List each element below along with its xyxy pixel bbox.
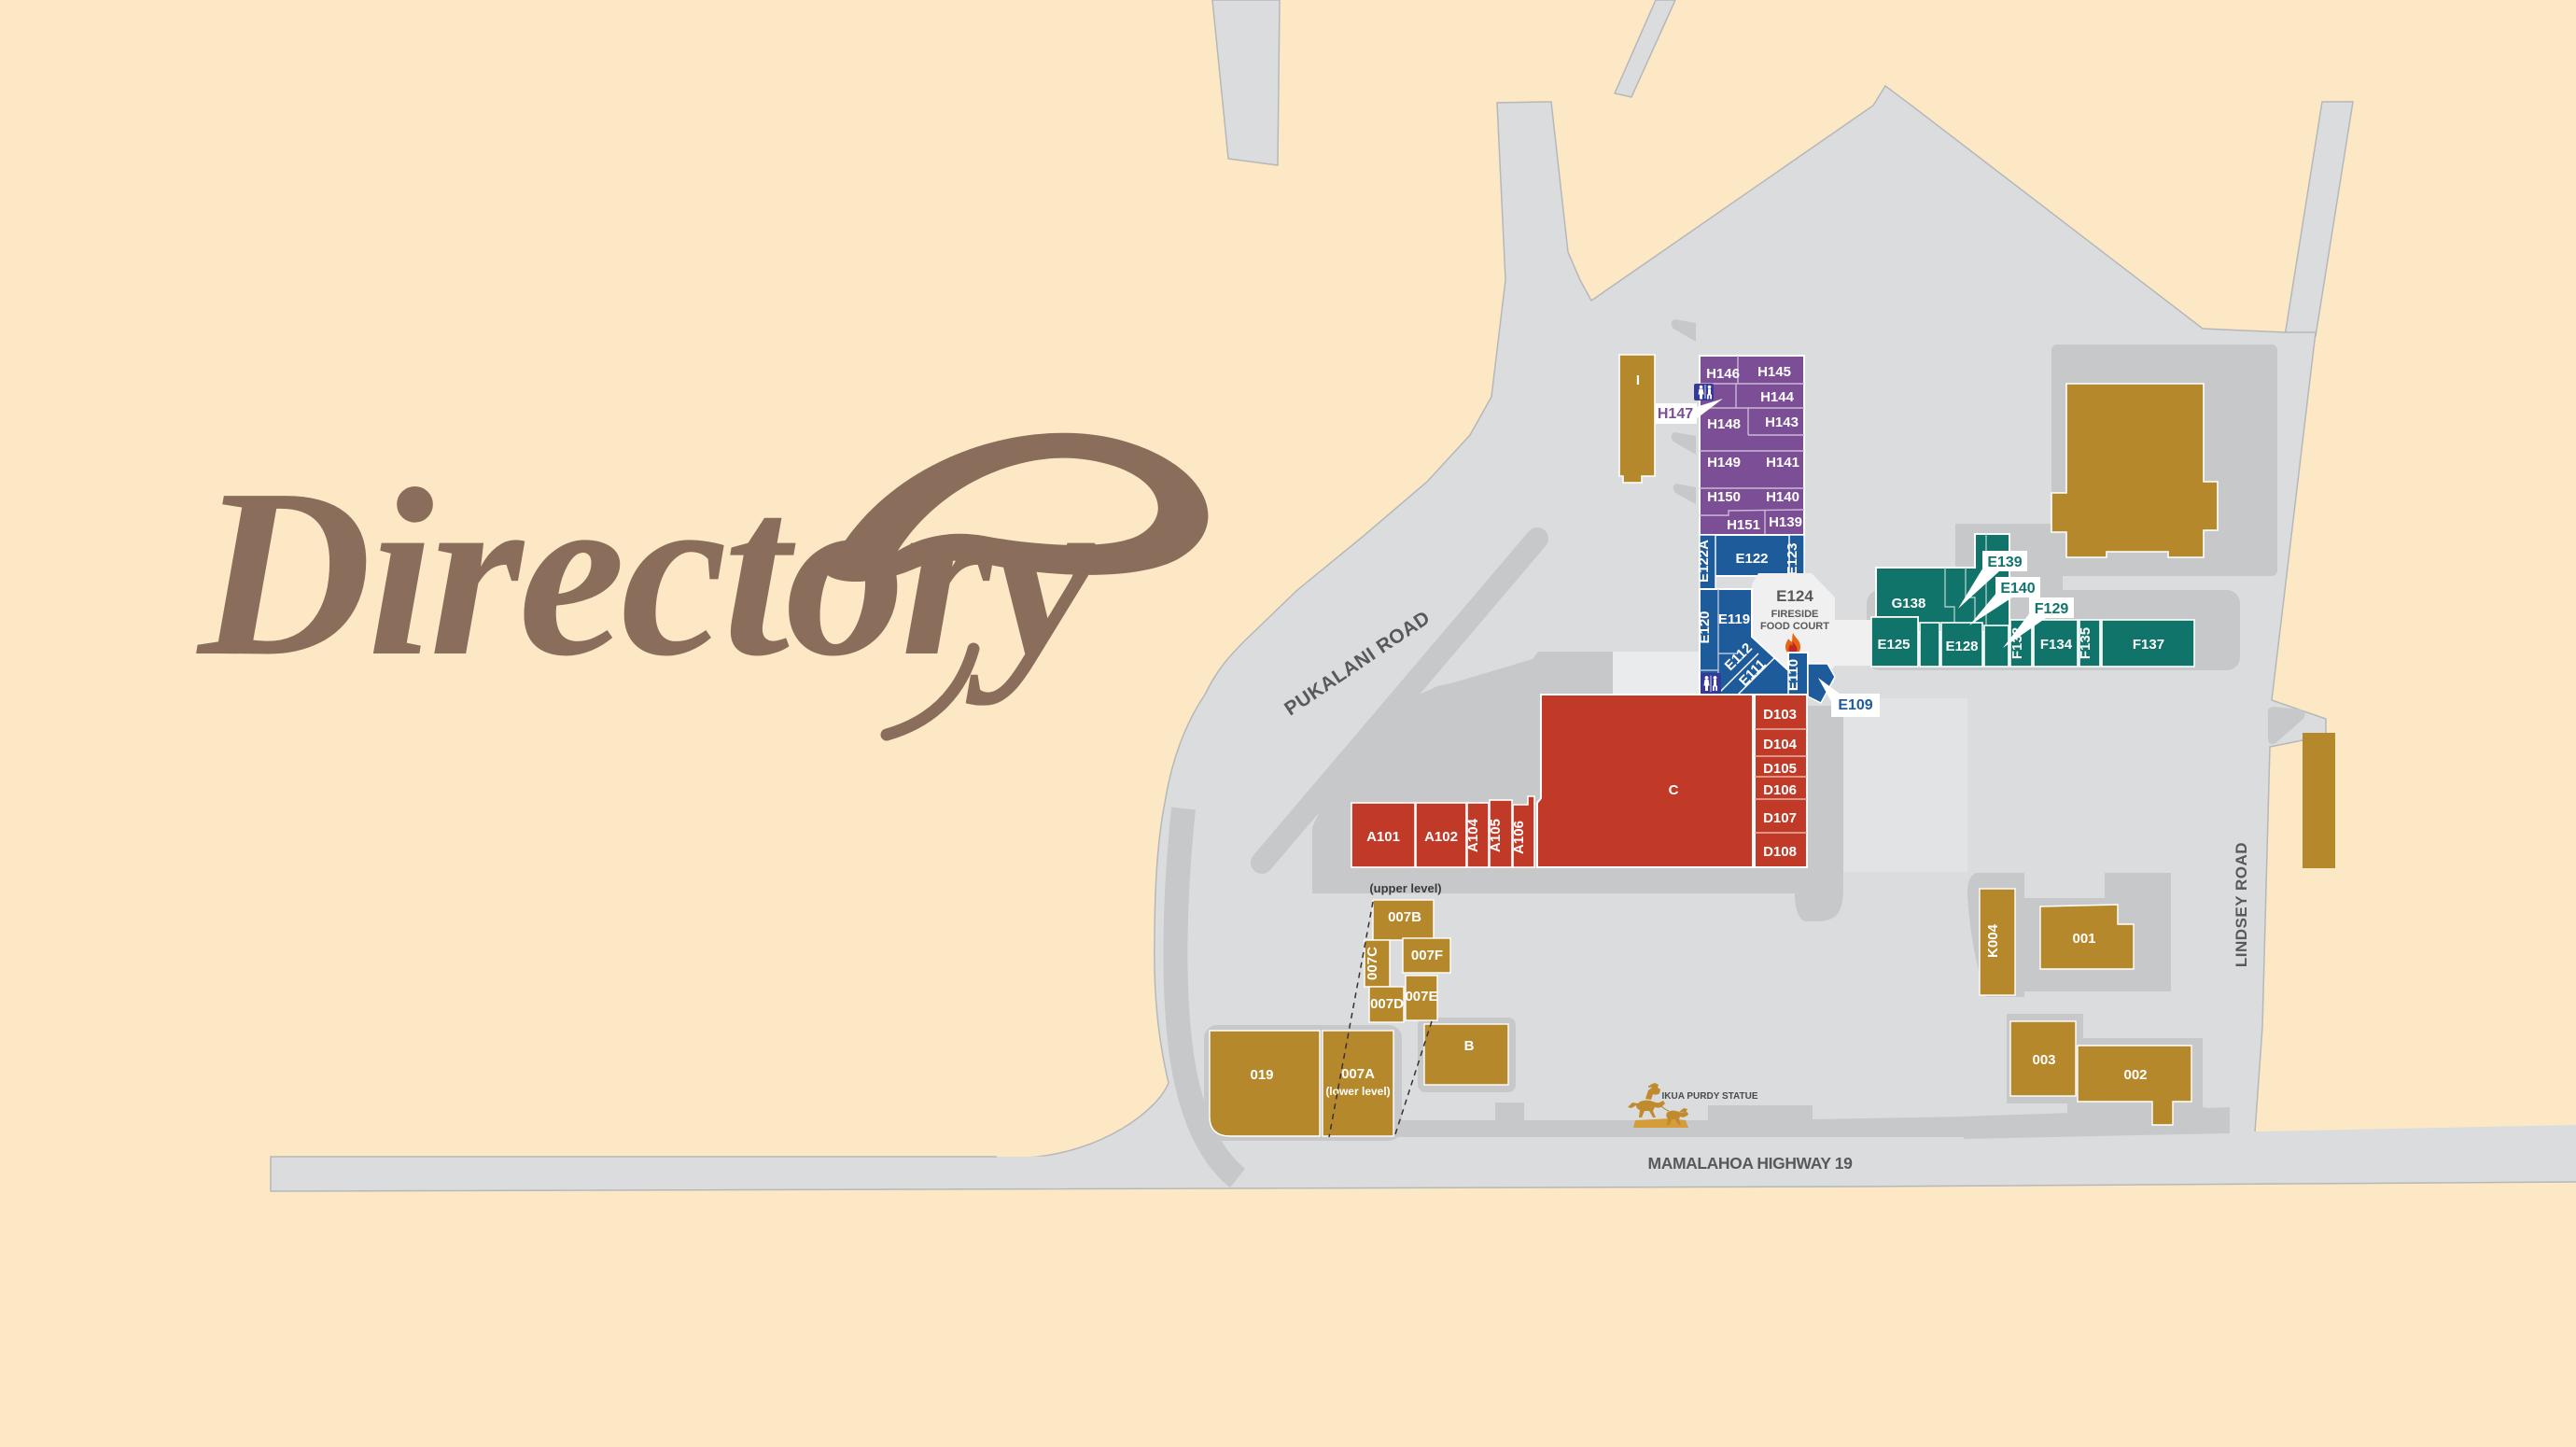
svg-text:FIRESIDE: FIRESIDE xyxy=(1771,609,1819,620)
svg-text:MAMALAHOA HIGHWAY 19: MAMALAHOA HIGHWAY 19 xyxy=(1648,1154,1854,1173)
svg-text:A102: A102 xyxy=(1424,829,1458,845)
svg-text:007D: 007D xyxy=(1370,996,1404,1012)
svg-text:E125: E125 xyxy=(1877,637,1910,653)
svg-text:019: 019 xyxy=(1250,1067,1273,1083)
svg-text:003: 003 xyxy=(2032,1052,2055,1068)
svg-text:H146: H146 xyxy=(1706,366,1740,382)
svg-text:007C: 007C xyxy=(1365,947,1380,980)
svg-text:K004: K004 xyxy=(1985,923,2001,958)
svg-text:(upper level): (upper level) xyxy=(1369,881,1441,895)
svg-text:E123: E123 xyxy=(1785,542,1800,575)
svg-text:E119: E119 xyxy=(1718,611,1750,627)
svg-text:E122A: E122A xyxy=(1696,540,1712,583)
svg-text:A104: A104 xyxy=(1465,818,1481,852)
svg-text:007A: 007A xyxy=(1341,1066,1375,1082)
svg-text:001: 001 xyxy=(2072,931,2095,947)
svg-text:A105: A105 xyxy=(1488,819,1504,852)
svg-text:(lower level): (lower level) xyxy=(1325,1085,1390,1098)
svg-text:H143: H143 xyxy=(1765,414,1799,430)
svg-text:C: C xyxy=(1669,782,1679,798)
svg-text:H150: H150 xyxy=(1707,489,1741,505)
svg-text:E124: E124 xyxy=(1776,587,1813,605)
svg-text:D107: D107 xyxy=(1763,810,1797,826)
svg-text:D103: D103 xyxy=(1763,707,1797,723)
svg-text:H149: H149 xyxy=(1707,455,1741,471)
svg-text:LINDSEY ROAD: LINDSEY ROAD xyxy=(2233,842,2250,967)
svg-text:H151: H151 xyxy=(1727,517,1760,533)
svg-text:D106: D106 xyxy=(1763,782,1797,798)
svg-text:G138: G138 xyxy=(1892,596,1926,611)
svg-text:E128: E128 xyxy=(1945,639,1978,654)
svg-text:H145: H145 xyxy=(1757,364,1791,380)
svg-text:F129: F129 xyxy=(2035,601,2069,617)
svg-text:007F: 007F xyxy=(1411,948,1443,963)
svg-text:IKUA PURDY STATUE: IKUA PURDY STATUE xyxy=(1662,1091,1758,1102)
svg-text:A101: A101 xyxy=(1366,829,1400,845)
svg-text:E110: E110 xyxy=(1785,659,1801,691)
svg-text:E109: E109 xyxy=(1838,697,1872,713)
svg-text:I: I xyxy=(1636,372,1640,388)
svg-text:E139: E139 xyxy=(1987,555,2022,570)
svg-text:H141: H141 xyxy=(1766,455,1799,471)
svg-text:A106: A106 xyxy=(1511,821,1527,854)
svg-text:H139: H139 xyxy=(1769,514,1802,530)
svg-text:H144: H144 xyxy=(1760,389,1795,405)
svg-text:D104: D104 xyxy=(1763,737,1798,752)
svg-text:E140: E140 xyxy=(2000,581,2035,597)
svg-text:E122: E122 xyxy=(1735,551,1768,567)
svg-text:F134: F134 xyxy=(2040,637,2073,653)
svg-text:E120: E120 xyxy=(1697,611,1713,643)
svg-text:007E: 007E xyxy=(1405,989,1437,1004)
svg-text:F135: F135 xyxy=(2078,627,2093,659)
svg-text:H147: H147 xyxy=(1658,406,1693,422)
svg-text:H140: H140 xyxy=(1766,489,1799,505)
svg-text:H148: H148 xyxy=(1707,416,1741,432)
svg-text:B: B xyxy=(1464,1038,1475,1054)
svg-text:007B: 007B xyxy=(1388,909,1421,925)
svg-text:002: 002 xyxy=(2123,1067,2147,1083)
svg-text:F137: F137 xyxy=(2133,637,2164,653)
svg-text:FOOD COURT: FOOD COURT xyxy=(1760,621,1829,632)
svg-text:D105: D105 xyxy=(1763,761,1797,777)
svg-text:D108: D108 xyxy=(1763,844,1797,860)
